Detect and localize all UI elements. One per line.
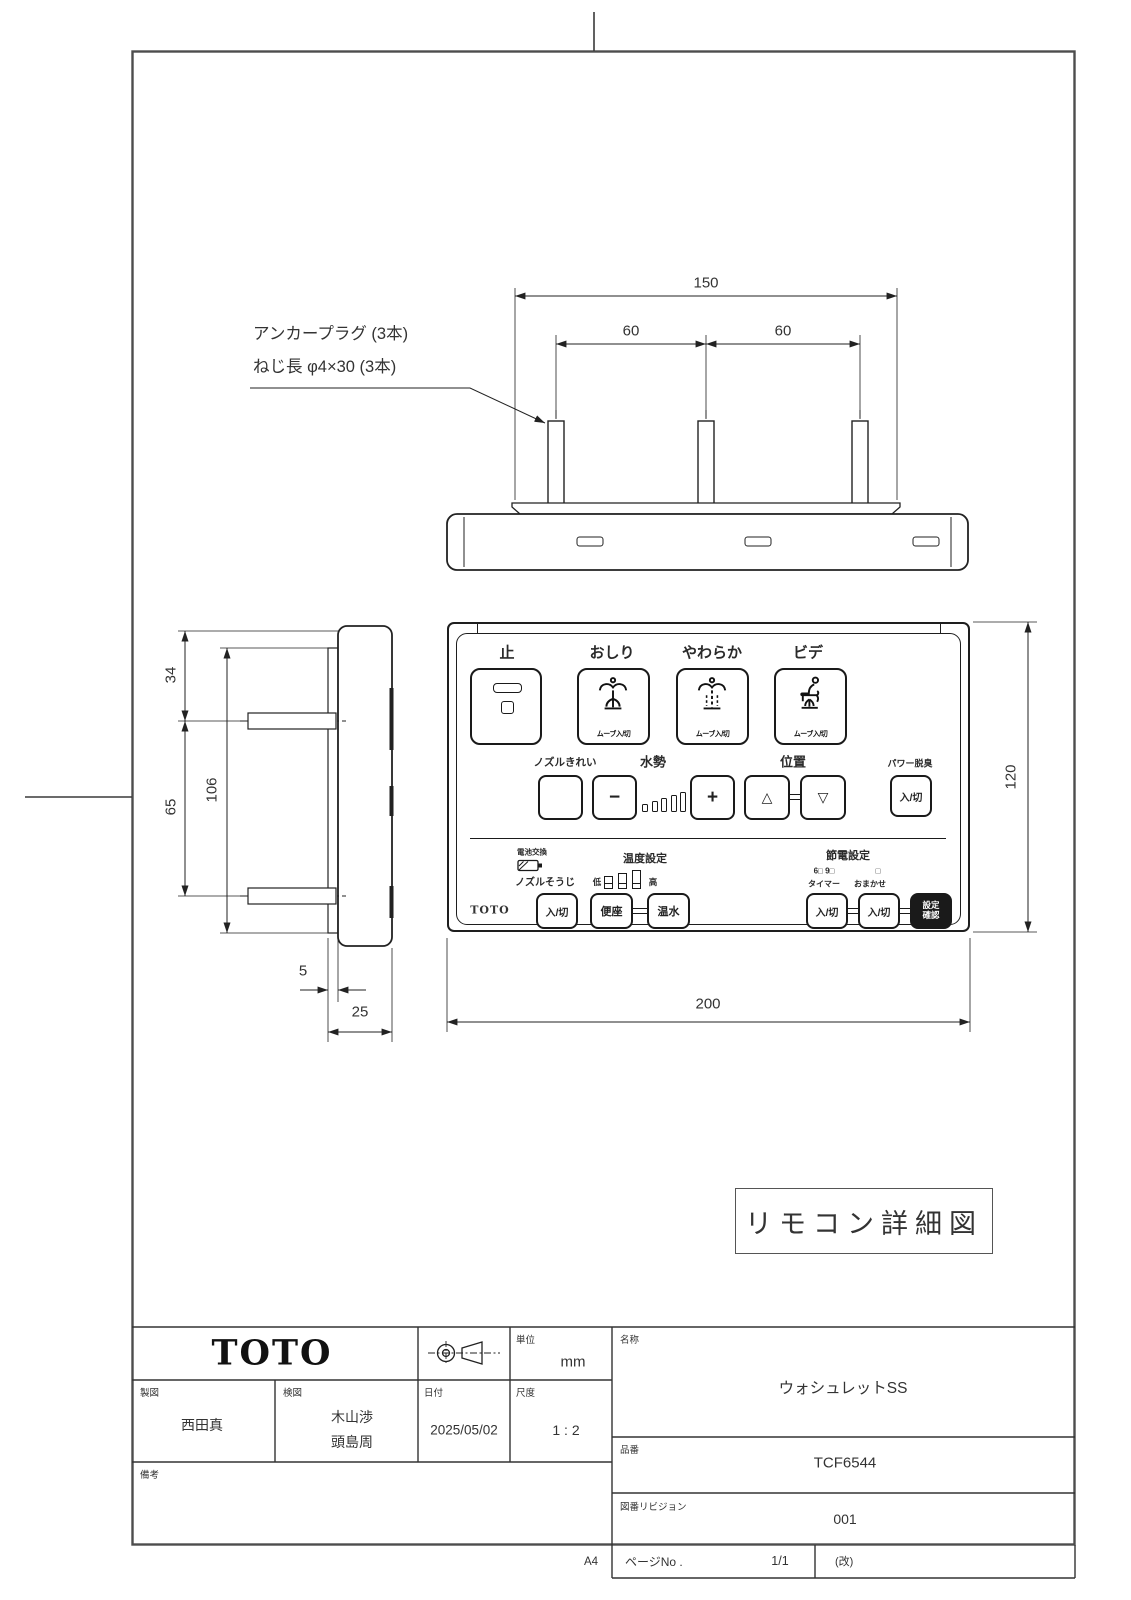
yawaraka-button: ムーブ入/切 <box>676 668 749 745</box>
omakase-onoff-button: 入/切 <box>858 893 900 929</box>
connector-line <box>848 908 858 914</box>
dim-front-height: 120 <box>1003 764 1020 789</box>
dim-pitch-right: 60 <box>775 323 792 340</box>
panel-divider-line <box>470 838 946 839</box>
timer-label: タイマー <box>808 879 840 890</box>
checker-name-2: 頭島周 <box>331 1432 373 1452</box>
dim-depth: 25 <box>352 1004 369 1021</box>
power-deodorizer-button: 入/切 <box>890 775 932 817</box>
stop-indicator-pill <box>493 683 522 693</box>
onoff-label: 入/切 <box>868 904 891 919</box>
product-name: ウォシュレットSS <box>779 1376 908 1398</box>
dim-top-width: 150 <box>693 275 718 292</box>
temp-level-indicator <box>604 870 644 889</box>
temp-level-bar <box>604 876 613 889</box>
nozzle-souji-label: ノズルそうじ <box>515 874 575 889</box>
triangle-down-icon: ▽ <box>818 789 829 806</box>
minus-glyph: − <box>609 787 620 809</box>
nozzle-clean-button <box>538 775 583 820</box>
battery-label: 電池交換 <box>517 847 547 858</box>
date-label: 日付 <box>424 1385 443 1399</box>
remarks-label: 備考 <box>140 1467 159 1481</box>
timer-onoff-button: 入/切 <box>806 893 848 929</box>
yawaraka-soft-spray-icon <box>694 676 730 712</box>
plus-glyph: + <box>707 787 718 809</box>
move-onoff-label: ムーブ入/切 <box>579 729 648 739</box>
paper-size-label: A4 <box>584 1556 598 1568</box>
side-view <box>178 626 394 1042</box>
bide-button: ムーブ入/切 <box>774 668 847 745</box>
part-no-label: 品番 <box>620 1442 639 1456</box>
page-no-value: 1/1 <box>771 1554 788 1568</box>
position-up-button: △ <box>744 775 790 820</box>
projection-symbol-icon <box>428 1341 500 1365</box>
unit-value: mm <box>561 1354 586 1371</box>
stop-label: 止 <box>499 642 514 663</box>
connector-line <box>633 908 647 914</box>
temp-setting-label: 温度設定 <box>623 850 667 866</box>
seat-label: 便座 <box>601 903 623 919</box>
temp-low-label: 低 <box>593 876 602 888</box>
power-deodorizer-label: パワー脱臭 <box>887 757 932 770</box>
oshiri-label: おしり <box>589 642 634 663</box>
callout-line2: ねじ長 φ4×30 (3本) <box>253 353 396 377</box>
checker-label: 検図 <box>283 1385 302 1399</box>
name-label: 名称 <box>620 1332 639 1346</box>
plate-edge-tick-right <box>940 622 941 633</box>
seat-temp-button: 便座 <box>590 893 633 929</box>
date-value: 2025/05/02 <box>430 1423 498 1438</box>
revision-label: 図番リビジョン <box>620 1499 687 1513</box>
connector-line <box>900 908 910 914</box>
checker-name-1: 木山渉 <box>331 1407 373 1427</box>
water-pressure-plus-button: + <box>690 775 735 820</box>
nozzle-souji-onoff-button: 入/切 <box>536 893 578 929</box>
dim-front-width: 200 <box>695 996 720 1013</box>
eco-setting-label: 節電設定 <box>826 847 870 863</box>
move-onoff-label: ムーブ入/切 <box>776 729 845 739</box>
omakase-label: おまかせ <box>854 879 886 890</box>
toto-logo-small: TOTO <box>470 904 510 917</box>
yawaraka-label: やわらか <box>682 642 742 663</box>
onoff-label: 入/切 <box>546 904 569 919</box>
set-confirm-button: 設定 確認 <box>910 893 952 929</box>
onoff-label: 入/切 <box>816 904 839 919</box>
warm-water-button: 温水 <box>647 893 690 929</box>
scale-label: 尺度 <box>516 1385 535 1399</box>
dim-plate-thickness: 5 <box>299 963 307 980</box>
stop-indicator-square <box>501 701 514 714</box>
eco-led-right: □ <box>876 867 881 876</box>
toto-logo: TOTO <box>211 1333 332 1374</box>
remote-front-view: 止 おしり やわらか ビデ ムーブ入/切 <box>447 622 970 932</box>
drawing-caption: リモコン詳細図 <box>745 1202 983 1241</box>
plate-edge-tick-left <box>477 622 478 633</box>
oshiri-button: ムーブ入/切 <box>577 668 650 745</box>
part-no-value: TCF6544 <box>814 1455 877 1472</box>
water-pressure-label: 水勢 <box>640 752 666 771</box>
temp-high-label: 高 <box>649 876 658 888</box>
temp-level-bar <box>632 870 641 889</box>
warm-water-label: 温水 <box>658 903 680 919</box>
water-pressure-level-bar <box>652 801 658 812</box>
dim-side-total: 106 <box>204 777 221 802</box>
callout-line1: アンカープラグ (3本) <box>253 320 408 344</box>
move-onoff-label: ムーブ入/切 <box>678 729 747 739</box>
water-pressure-minus-button: − <box>592 775 637 820</box>
page-no-label: ページNo . <box>625 1553 683 1570</box>
water-pressure-level-indicator <box>642 775 688 820</box>
bide-icon <box>792 676 828 712</box>
stop-button <box>470 668 542 745</box>
nozzle-clean-label: ノズルきれい <box>534 755 597 770</box>
position-label: 位置 <box>780 752 806 771</box>
eco-led-labels: 6□ 9□ <box>814 867 835 876</box>
drawing-page: アンカープラグ (3本) ねじ長 φ4×30 (3本) 150 60 60 34… <box>0 0 1131 1600</box>
water-pressure-level-bar <box>642 804 648 812</box>
confirm-label: 確認 <box>922 911 939 921</box>
onoff-label: 入/切 <box>900 789 923 804</box>
oshiri-spray-icon <box>595 676 631 712</box>
scale-value: 1 : 2 <box>552 1422 579 1438</box>
water-pressure-level-bar <box>680 792 686 812</box>
drafter-label: 製図 <box>140 1385 159 1399</box>
connector-line <box>790 794 800 800</box>
drawing-caption-box: リモコン詳細図 <box>735 1188 993 1254</box>
rev-note: (改) <box>835 1553 853 1569</box>
unit-label: 単位 <box>516 1332 535 1346</box>
bide-label: ビデ <box>793 642 823 663</box>
water-pressure-level-bar <box>661 798 667 812</box>
dim-side-top: 34 <box>163 667 180 684</box>
revision-value: 001 <box>833 1511 856 1527</box>
water-pressure-level-bar <box>671 795 677 812</box>
dim-side-mid: 65 <box>163 799 180 816</box>
dim-pitch-left: 60 <box>623 323 640 340</box>
triangle-up-icon: △ <box>762 789 773 806</box>
temp-level-bar <box>618 873 627 889</box>
drafter-name: 西田真 <box>181 1415 223 1435</box>
battery-icon <box>517 859 543 872</box>
position-down-button: ▽ <box>800 775 846 820</box>
